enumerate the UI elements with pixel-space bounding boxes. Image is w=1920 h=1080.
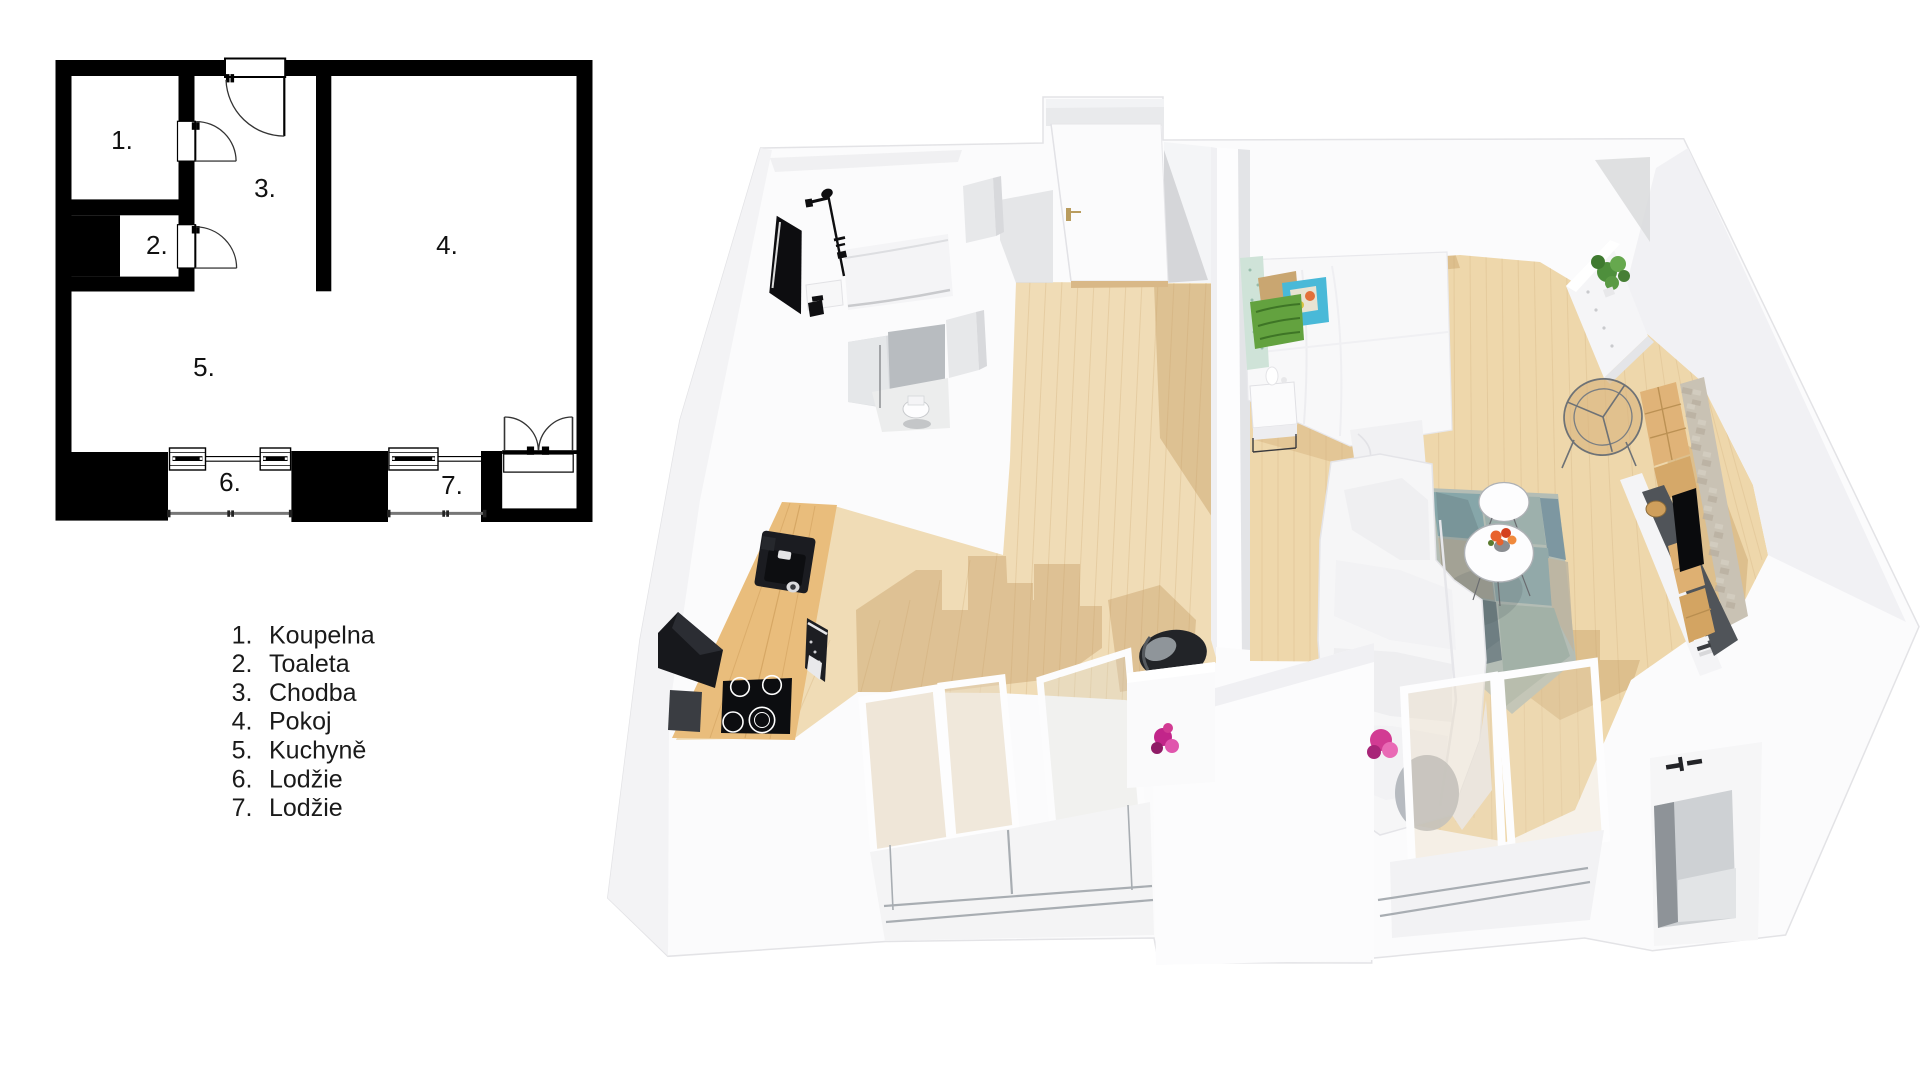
svg-text:Toaleta: Toaleta [269,650,350,678]
svg-text:7.: 7. [441,470,463,500]
svg-text:3.: 3. [254,173,276,203]
svg-text:2.: 2. [232,650,253,678]
svg-text:1.: 1. [111,125,133,155]
svg-text:6.: 6. [219,467,241,497]
svg-text:3.: 3. [232,679,253,707]
svg-text:4.: 4. [436,230,458,260]
svg-text:4.: 4. [232,708,253,736]
svg-text:1.: 1. [232,621,253,649]
svg-text:5.: 5. [193,352,215,382]
svg-text:5.: 5. [232,737,253,765]
svg-text:Lodžie: Lodžie [269,794,343,822]
svg-text:2.: 2. [146,230,168,260]
svg-text:6.: 6. [232,765,253,793]
svg-text:Chodba: Chodba [269,679,357,707]
svg-text:Pokoj: Pokoj [269,708,332,736]
svg-text:Lodžie: Lodžie [269,765,343,793]
svg-text:Koupelna: Koupelna [269,621,375,649]
svg-text:7.: 7. [232,794,253,822]
svg-text:Kuchyně: Kuchyně [269,737,366,765]
